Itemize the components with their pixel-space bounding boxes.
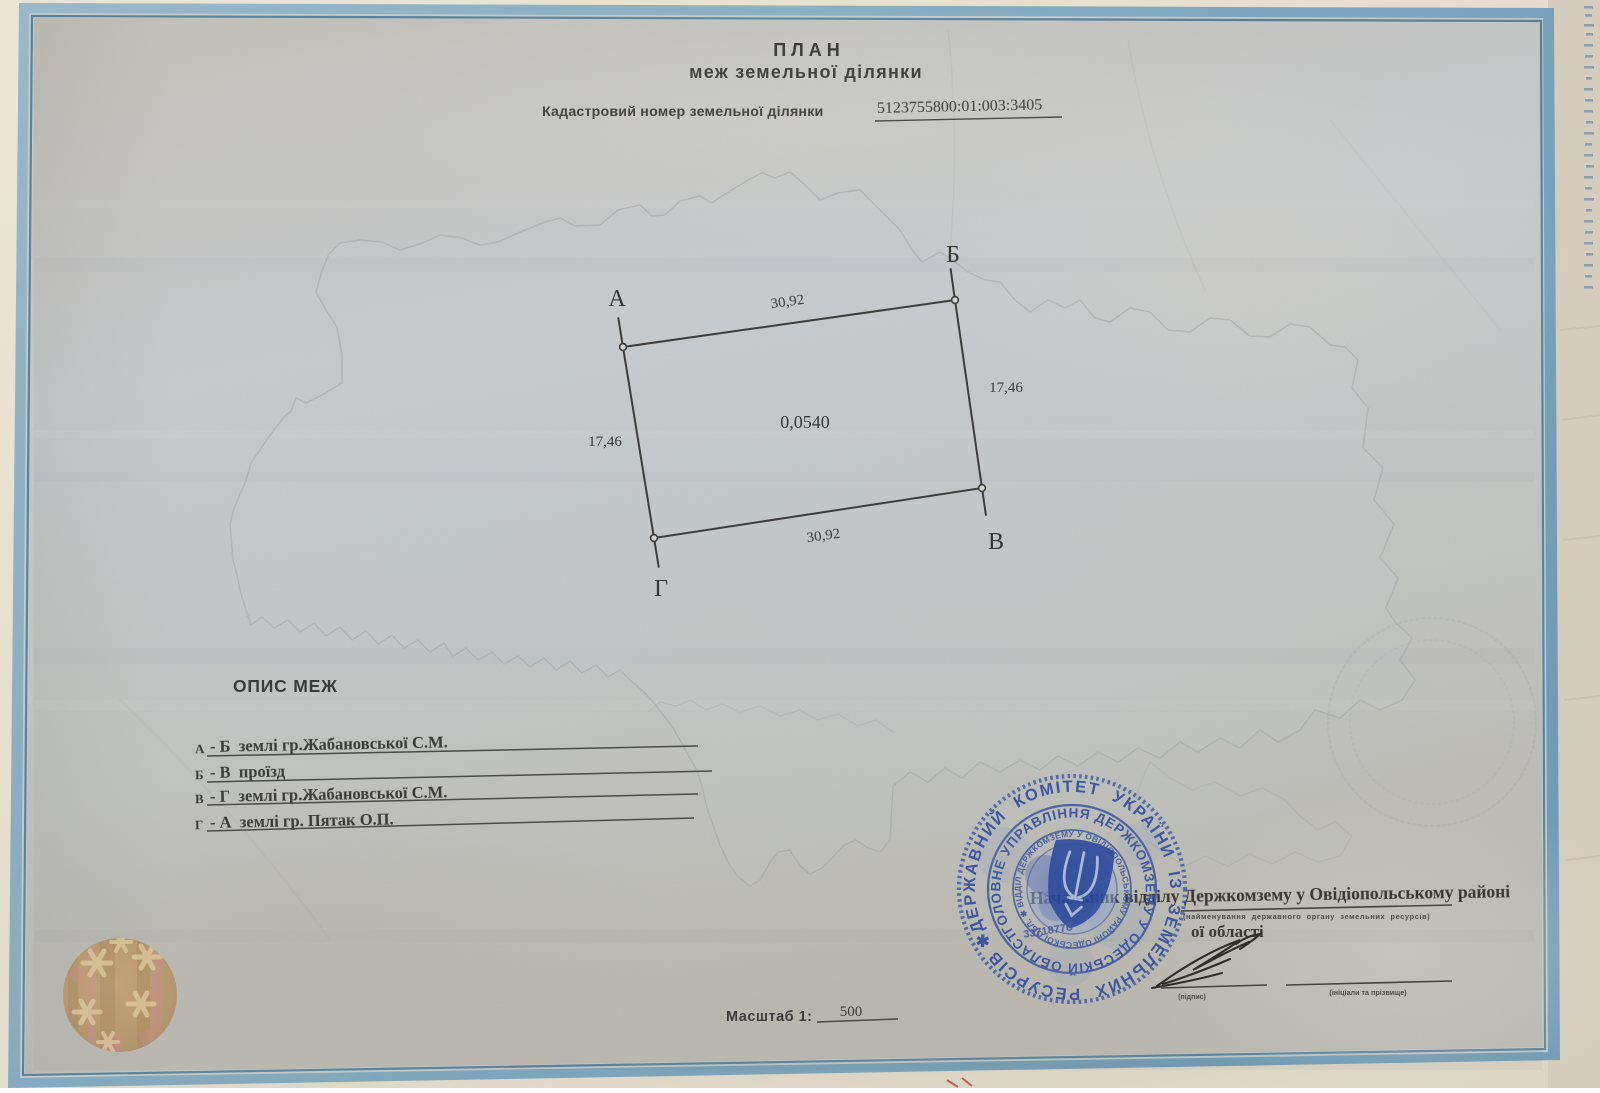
svg-text:17,46: 17,46 <box>588 434 622 450</box>
svg-text:0,0540: 0,0540 <box>780 412 830 432</box>
svg-text:500: 500 <box>840 1004 863 1020</box>
svg-text:А: А <box>195 741 205 756</box>
svg-text:ОПИС МЕЖ: ОПИС МЕЖ <box>233 676 338 696</box>
svg-text:(ініціали та прізвище): (ініціали та прізвище) <box>1329 988 1407 997</box>
svg-text:В: В <box>988 529 1004 555</box>
svg-text:ПЛАН: ПЛАН <box>773 40 845 60</box>
svg-text:17,46: 17,46 <box>989 380 1023 396</box>
svg-text:Г: Г <box>195 817 204 832</box>
svg-text:меж земельної ділянки: меж земельної ділянки <box>689 62 923 82</box>
svg-text:Кадастровий номер земельної ді: Кадастровий номер земельної ділянки <box>542 104 823 120</box>
svg-text:Г: Г <box>654 576 668 602</box>
svg-text:Масштаб 1:: Масштаб 1: <box>726 1009 813 1025</box>
svg-text:Б: Б <box>946 242 960 268</box>
svg-text:(найменування державного орг: (найменування державного органу земельни… <box>1183 912 1430 921</box>
svg-text:ої області: ої області <box>1191 922 1264 941</box>
svg-text:Б: Б <box>195 767 204 782</box>
svg-text:(підпис): (підпис) <box>1178 993 1206 1001</box>
svg-text:А: А <box>608 286 626 312</box>
svg-text:- В проїзд: - В проїзд <box>210 762 286 782</box>
svg-text:В: В <box>195 791 204 806</box>
svg-text:5123755800:01:003:3405: 5123755800:01:003:3405 <box>877 97 1043 117</box>
